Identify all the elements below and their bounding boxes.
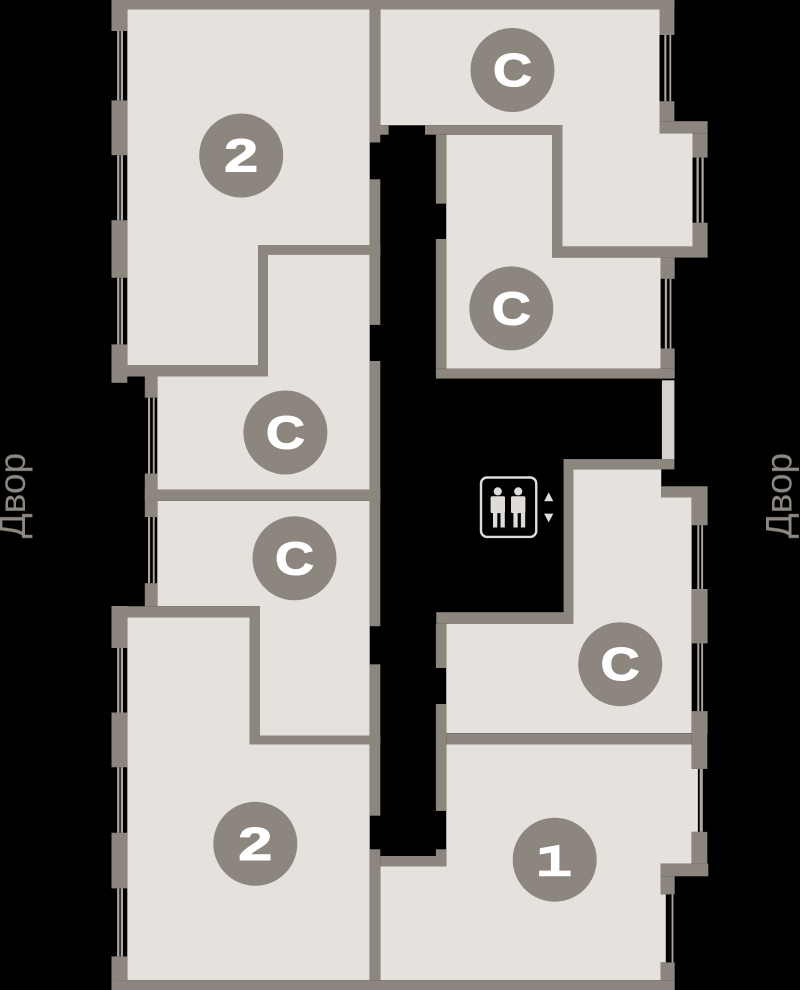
svg-text:С: С xyxy=(275,532,314,584)
svg-text:Двор: Двор xyxy=(0,453,33,538)
svg-text:Двор: Двор xyxy=(759,453,800,538)
svg-text:2: 2 xyxy=(238,818,272,870)
svg-text:С: С xyxy=(492,282,531,334)
svg-text:С: С xyxy=(266,407,305,459)
svg-text:С: С xyxy=(601,638,640,690)
svg-text:2: 2 xyxy=(224,130,258,182)
svg-text:С: С xyxy=(493,44,532,96)
